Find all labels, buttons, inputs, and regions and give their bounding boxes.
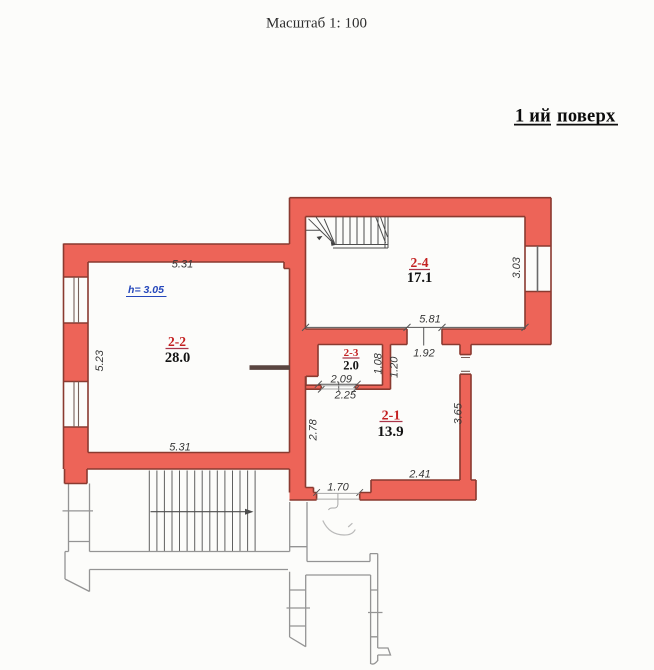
svg-text:3.65: 3.65 (453, 402, 465, 424)
svg-text:Масштаб 1: 100: Масштаб 1: 100 (266, 16, 367, 32)
svg-text:2.78: 2.78 (308, 418, 320, 441)
svg-text:28.0: 28.0 (165, 350, 190, 366)
svg-text:1.08: 1.08 (373, 352, 385, 374)
svg-text:5.81: 5.81 (419, 314, 440, 326)
svg-text:h= 3.05: h= 3.05 (128, 284, 164, 296)
svg-text:2-3: 2-3 (344, 347, 359, 359)
svg-text:1.20: 1.20 (389, 356, 401, 378)
svg-text:5.31: 5.31 (169, 442, 190, 454)
svg-text:5.23: 5.23 (94, 349, 106, 371)
svg-text:2-4: 2-4 (411, 255, 429, 270)
svg-text:1.92: 1.92 (413, 348, 434, 360)
svg-text:2-2: 2-2 (168, 334, 186, 349)
svg-text:1.70: 1.70 (327, 482, 349, 494)
svg-text:2.25: 2.25 (334, 390, 357, 402)
svg-text:2.41: 2.41 (408, 469, 430, 481)
svg-text:1 ий: 1 ий (515, 107, 551, 127)
svg-text:3.03: 3.03 (511, 256, 523, 278)
svg-text:13.9: 13.9 (377, 424, 403, 440)
svg-text:2.0: 2.0 (343, 359, 359, 373)
svg-text:2.09: 2.09 (330, 374, 352, 386)
svg-text:17.1: 17.1 (407, 270, 432, 286)
svg-text:поверх: поверх (557, 107, 616, 127)
svg-text:5.31: 5.31 (172, 259, 193, 271)
